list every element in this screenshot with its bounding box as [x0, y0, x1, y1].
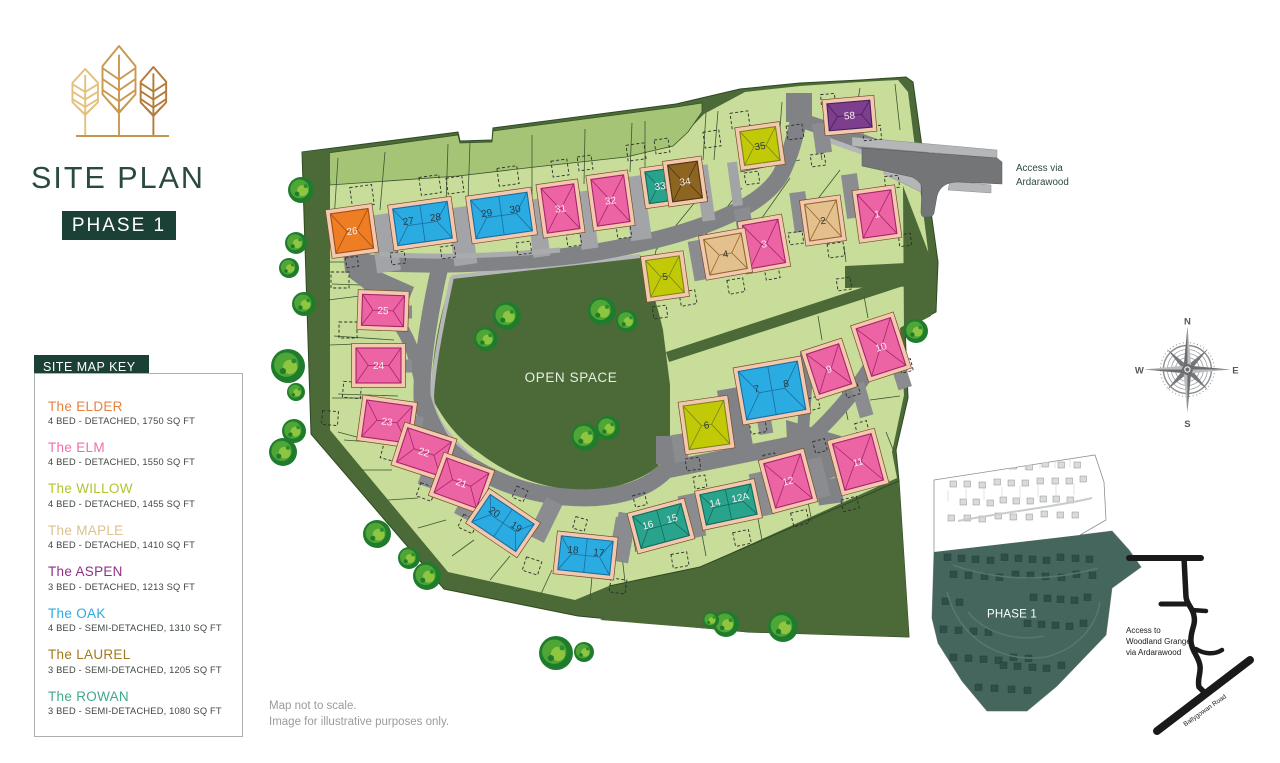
svg-text:34: 34	[679, 176, 692, 189]
svg-text:26: 26	[346, 226, 359, 239]
svg-text:33: 33	[654, 181, 667, 194]
svg-text:28: 28	[429, 212, 442, 225]
svg-text:OPEN SPACE: OPEN SPACE	[525, 370, 618, 385]
svg-text:N: N	[1184, 317, 1191, 328]
svg-text:via Ardarawood: via Ardarawood	[1126, 648, 1181, 657]
svg-text:17: 17	[593, 547, 606, 559]
svg-text:Access to: Access to	[1126, 626, 1161, 635]
svg-text:S: S	[1184, 419, 1190, 430]
svg-text:31: 31	[554, 203, 567, 216]
svg-text:E: E	[1232, 366, 1238, 377]
svg-text:Woodland Grange: Woodland Grange	[1126, 637, 1191, 646]
svg-text:58: 58	[844, 110, 856, 122]
svg-text:30: 30	[509, 204, 522, 217]
svg-text:23: 23	[381, 416, 394, 429]
svg-text:W: W	[1135, 366, 1144, 377]
svg-text:Ardarawood: Ardarawood	[1016, 177, 1069, 188]
svg-text:PHASE 1: PHASE 1	[987, 609, 1037, 621]
svg-text:Access via: Access via	[1016, 163, 1063, 174]
svg-text:18: 18	[567, 545, 580, 557]
svg-text:25: 25	[377, 306, 389, 317]
svg-text:24: 24	[373, 361, 385, 372]
svg-text:27: 27	[402, 216, 415, 229]
svg-text:29: 29	[481, 208, 494, 221]
svg-text:32: 32	[604, 195, 617, 208]
svg-text:35: 35	[754, 141, 767, 154]
